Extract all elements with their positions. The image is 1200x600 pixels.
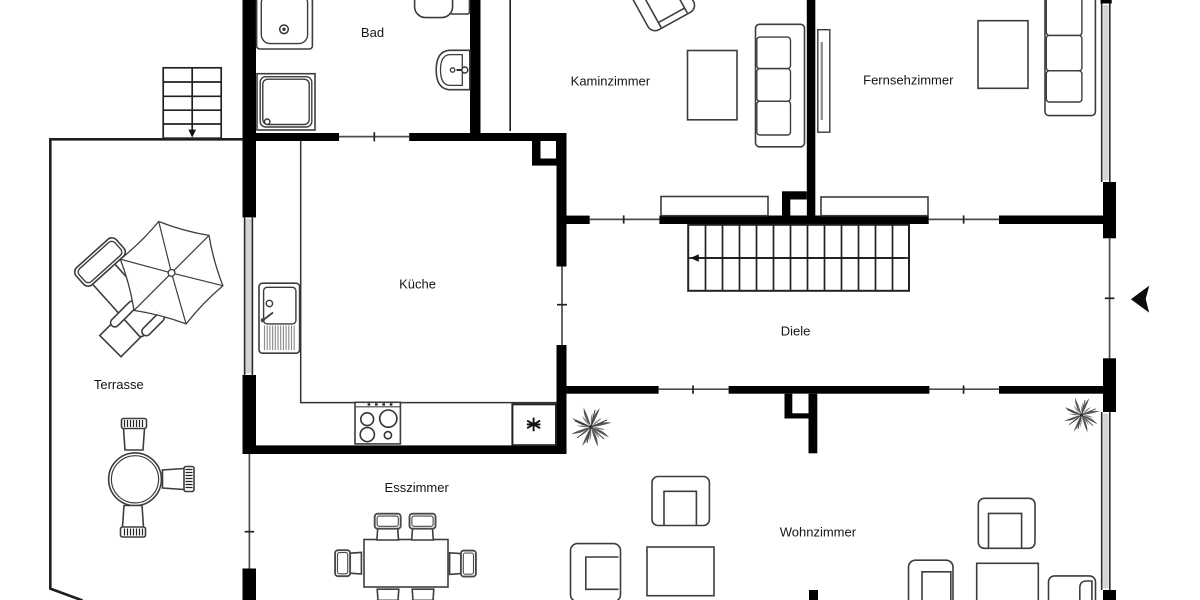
svg-text:Diele: Diele [781,323,811,338]
svg-text:Bad: Bad [361,25,384,40]
svg-text:Küche: Küche [399,277,436,292]
svg-text:Esszimmer: Esszimmer [385,480,450,495]
svg-text:Kaminzimmer: Kaminzimmer [571,74,651,89]
svg-text:Terrasse: Terrasse [94,377,144,392]
svg-text:Fernsehzimmer: Fernsehzimmer [863,73,954,88]
svg-text:Wohnzimmer: Wohnzimmer [780,525,857,540]
